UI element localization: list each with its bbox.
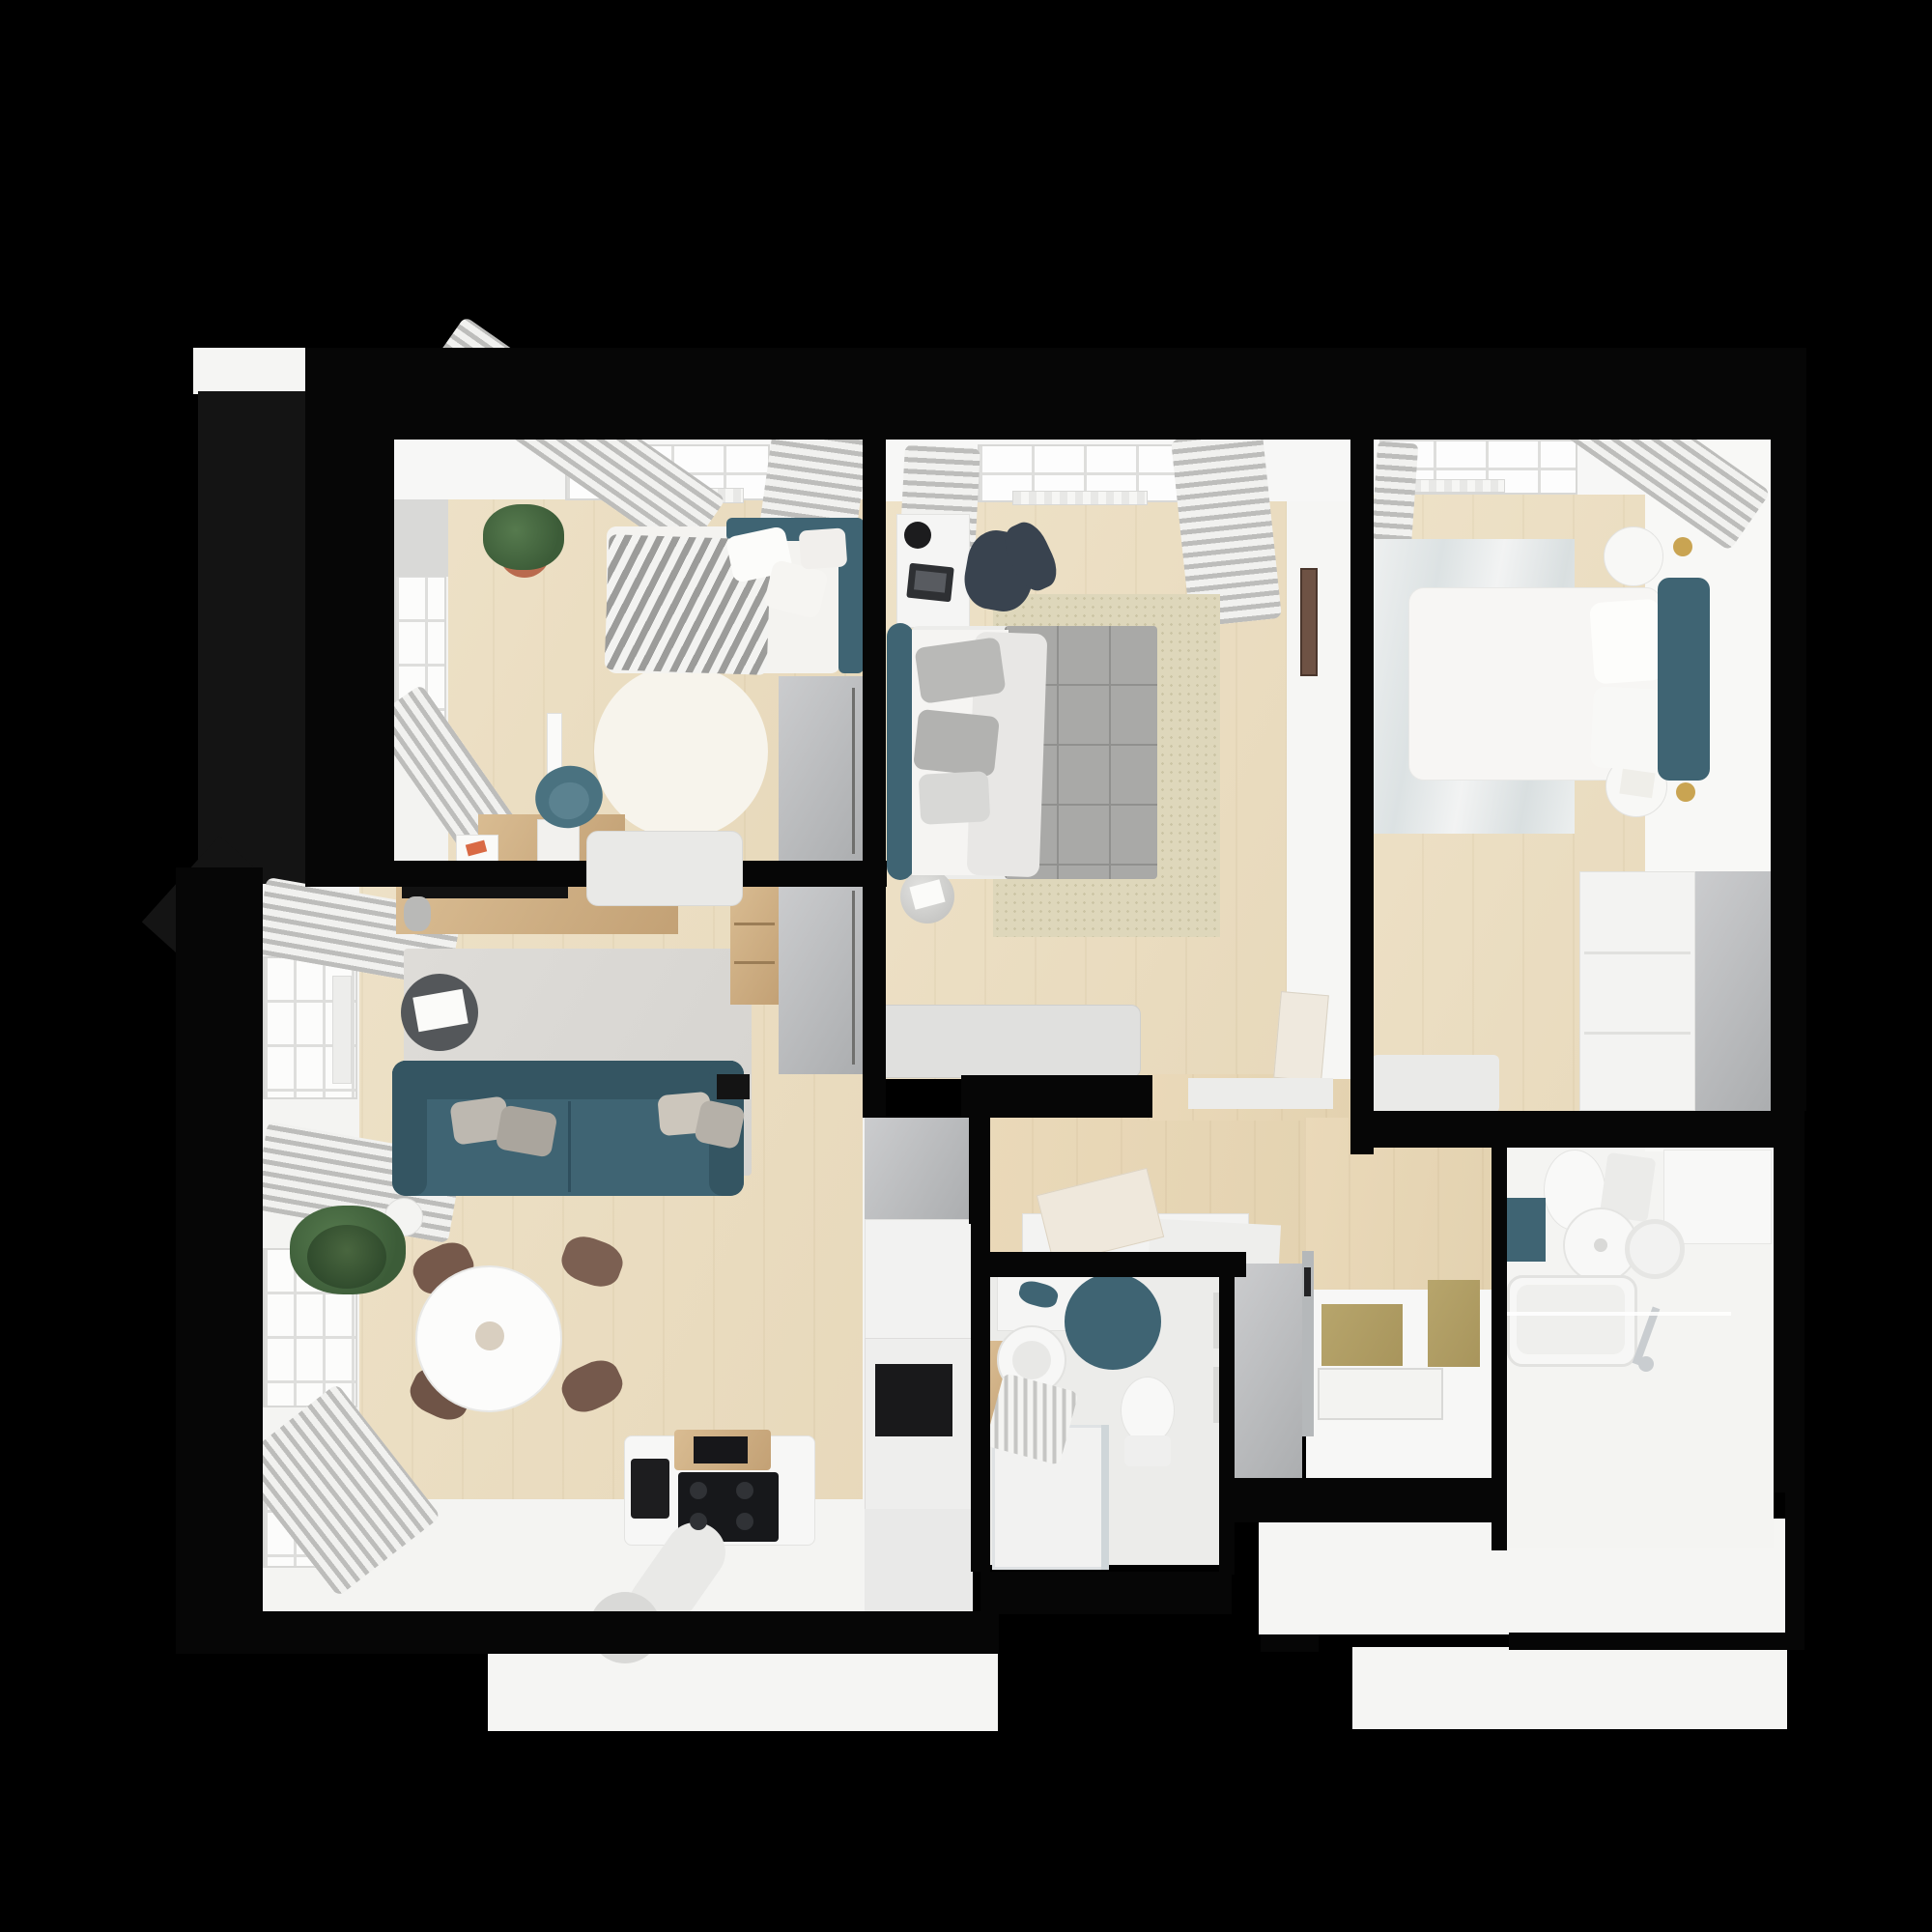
bedroom1-bench-dresser <box>586 831 743 906</box>
exterior-slab-bottom <box>488 1654 998 1731</box>
wall-bedroom1-bedroom2 <box>863 348 886 1118</box>
bedroom1-wardrobe-handle <box>852 688 855 854</box>
bedroom2-bed-frame <box>887 623 914 880</box>
kitchen-burner-1 <box>690 1482 707 1499</box>
nook-shelf-line-2 <box>734 961 775 964</box>
corridor-baseboard <box>1188 1078 1333 1109</box>
wall-bathroom2-east <box>1774 1111 1804 1492</box>
nook-shelf-line-1 <box>734 923 775 925</box>
entry-door-handle <box>1304 1267 1311 1296</box>
wall-bathroom1-north <box>971 1252 1246 1277</box>
kitchen-column-upper <box>865 1118 973 1222</box>
bedroom3-dresser <box>1579 871 1695 1111</box>
kitchen-coffee-machine <box>631 1459 669 1519</box>
kitchen-column-lower <box>865 1509 973 1613</box>
kitchen-burner-2 <box>690 1513 707 1530</box>
floor-plan-canvas <box>0 0 1932 1932</box>
kitchen-hood-core <box>694 1436 748 1463</box>
exterior-strip-top-left <box>193 348 307 394</box>
bedroom3-teal-headboard <box>1658 578 1710 781</box>
wall-bathroom1-east <box>1219 1252 1235 1575</box>
living-vase <box>404 896 431 931</box>
bathroom2-mirror <box>1625 1219 1685 1279</box>
wall-right-outer <box>1771 348 1806 1111</box>
bedroom2-leaning-door <box>1273 991 1329 1082</box>
bedroom1-pillow-c <box>799 527 848 569</box>
bedroom1-sheer-panel <box>394 499 448 577</box>
living-sofa-arm-left <box>392 1061 427 1196</box>
bathroom1-sink-basin <box>1012 1341 1051 1379</box>
entry-wardrobe <box>1235 1264 1302 1486</box>
exterior-terrace-lower <box>1352 1647 1787 1729</box>
living-sofa-seam <box>568 1101 571 1192</box>
wall-top-band <box>307 348 1806 440</box>
bedroom1-floor-speaker <box>547 713 562 775</box>
bedroom3-dresser-line-1 <box>1584 952 1690 954</box>
kitchen-counter <box>865 1219 973 1340</box>
nook-wardrobe-handle <box>852 891 855 1065</box>
wall-bedroom3-south <box>1372 1111 1804 1148</box>
living-sofa-tray <box>717 1074 750 1099</box>
wall-bathroom2-west <box>1492 1118 1507 1550</box>
bedroom2-desk-lamp <box>904 522 931 549</box>
wall-bottom-living <box>176 1611 999 1654</box>
living-sofa-pillow-d <box>694 1099 746 1151</box>
wall-living-east-upper <box>969 1118 990 1224</box>
bathroom2-teal-mat <box>1505 1198 1546 1262</box>
entry-shower-tray <box>1318 1368 1443 1420</box>
bathroom1-teal-rug <box>1065 1273 1161 1370</box>
bedroom3-nightstand-top <box>1604 526 1663 586</box>
bathroom2-sink-drain <box>1594 1238 1607 1252</box>
bathroom1-toilet-bowl <box>1121 1377 1175 1444</box>
bedroom2-picture-frame <box>1300 568 1318 676</box>
bathroom2-tub-basin <box>1517 1285 1625 1354</box>
living-sofa-pillow-b <box>495 1104 557 1157</box>
wall-entry-south-block <box>1232 1478 1495 1522</box>
bedroom1-plant <box>483 504 564 570</box>
bathroom2-corner-cabinet <box>1663 1150 1772 1244</box>
living-radiator-1 <box>332 976 352 1084</box>
wall-bathroom1-west <box>971 1224 990 1572</box>
wall-terrace-column <box>1785 1488 1804 1650</box>
wall-bathroom1-south <box>980 1572 1232 1614</box>
wall-bedroom2-bedroom3 <box>1350 348 1374 1154</box>
bedroom3-tray <box>1619 769 1655 798</box>
nook-wardrobe <box>779 881 864 1074</box>
entry-tile-right <box>1428 1280 1480 1367</box>
bathroom2-glass-screen <box>1507 1312 1731 1316</box>
bedroom3-pillow-a <box>1589 599 1664 685</box>
living-table-centerpiece <box>475 1321 504 1350</box>
bedroom3-dresser-side <box>1695 871 1773 1111</box>
bedroom2-pillow-a <box>914 637 1006 704</box>
bedroom3-dresser-line-2 <box>1584 1032 1690 1035</box>
entry-tile-left <box>1321 1304 1403 1366</box>
kitchen-burner-3 <box>736 1482 753 1499</box>
bathroom2-shower-head <box>1638 1356 1654 1372</box>
living-large-plant-core <box>307 1225 386 1289</box>
wall-terrace-notch <box>1261 1634 1319 1652</box>
bedroom1-wardrobe <box>779 676 864 866</box>
bedroom2-pillow-c <box>919 771 991 825</box>
kitchen-burner-4 <box>736 1513 753 1530</box>
bedroom2-pillow-b <box>913 709 1000 777</box>
bedroom2-bench <box>875 1005 1141 1078</box>
bedroom2-radiator <box>1012 491 1148 505</box>
wall-terrace-strip <box>1509 1633 1804 1650</box>
bedroom3-bench <box>1372 1055 1499 1113</box>
wall-left-upper <box>305 348 394 887</box>
bathroom1-toilet-tank <box>1124 1435 1171 1466</box>
bedroom1-round-rug <box>594 665 768 838</box>
bedroom3-wall-lamp-top <box>1673 537 1692 556</box>
bathroom1-shower-glass <box>1101 1425 1109 1570</box>
bedroom2-laptop-screen <box>914 570 947 592</box>
bedroom3-pillow-b <box>1590 686 1663 771</box>
kitchen-oven <box>875 1364 952 1436</box>
wall-bedroom2-south <box>961 1075 1152 1118</box>
bedroom3-wall-lamp-bottom <box>1676 782 1695 802</box>
wall-left-living <box>176 867 263 1654</box>
